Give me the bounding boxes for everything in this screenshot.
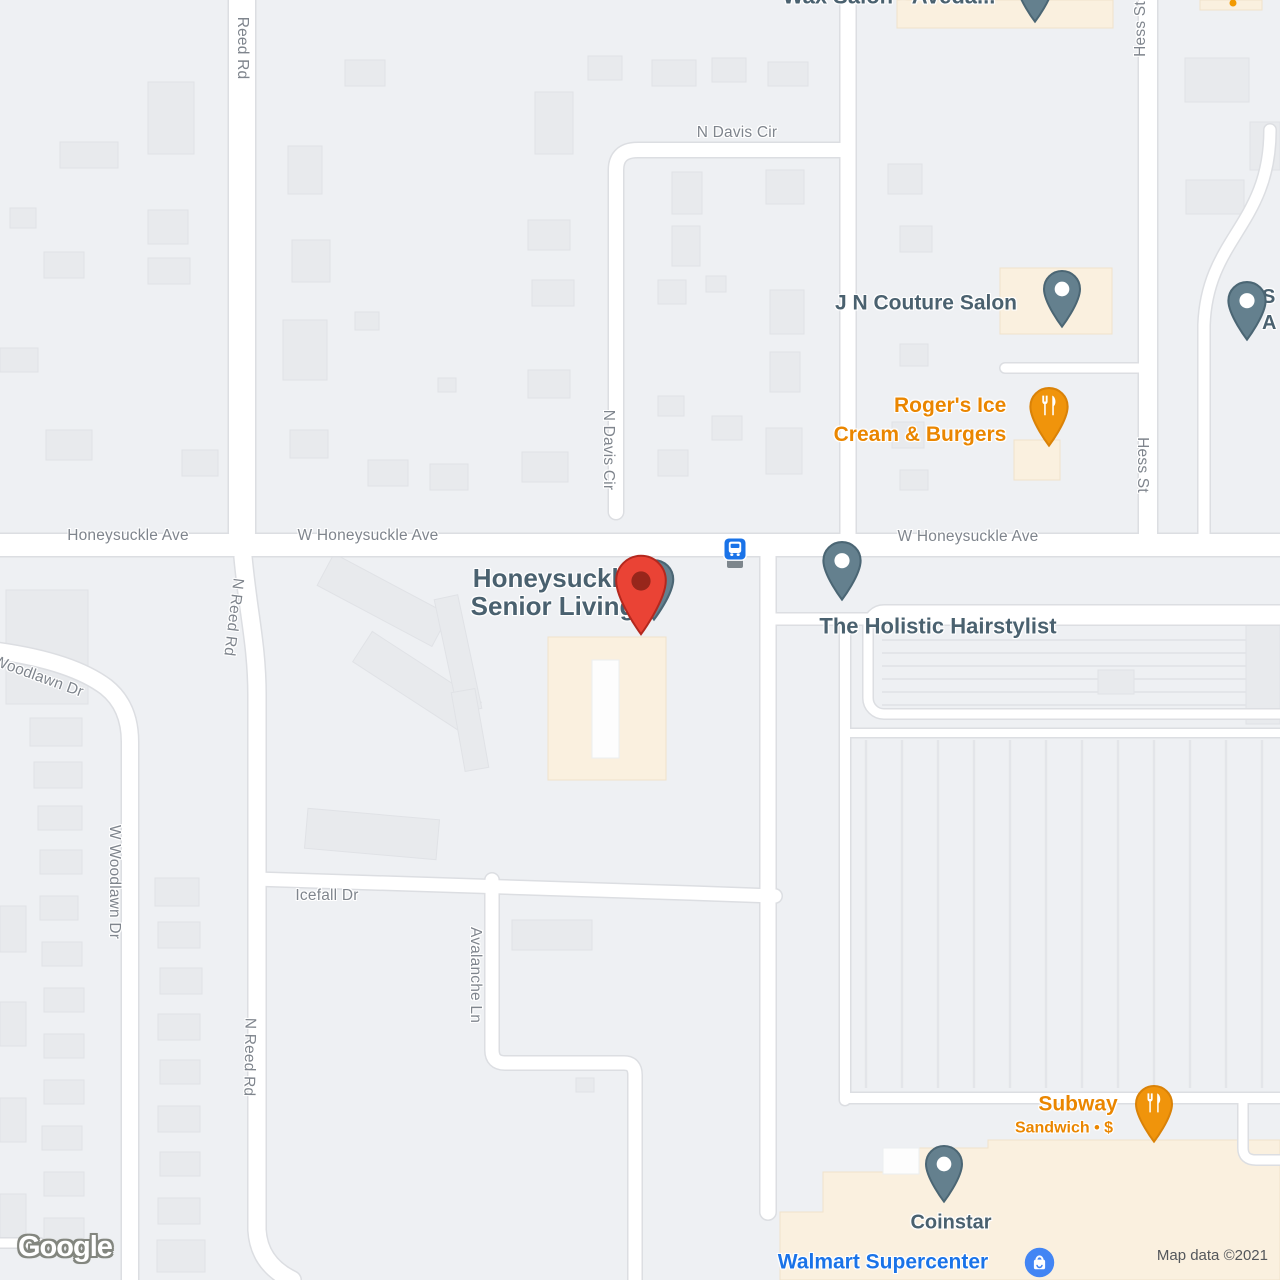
street-label-n-davis-cir-h: N Davis Cir — [697, 124, 778, 142]
poi-label-line: Cream & Burgers — [834, 420, 1007, 449]
poi-label-line: Roger's Ice — [834, 391, 1007, 420]
poi-label-honeysuckle-senior-living[interactable]: Honeysuckle Senior Living — [471, 564, 636, 620]
street-label-avalanche-ln: Avalanche Ln — [466, 927, 484, 1023]
street-label-n-davis-cir-v: N Davis Cir — [599, 410, 617, 491]
building — [283, 320, 327, 380]
street-label-hess-st-top: Hess St — [1132, 1, 1150, 57]
building — [157, 1240, 205, 1272]
building — [44, 1034, 84, 1058]
street-label-w-honeysuckle-ave-west: W Honeysuckle Ave — [298, 527, 439, 545]
building — [158, 922, 200, 948]
building — [292, 240, 330, 282]
building — [148, 258, 190, 284]
building-courtyard — [592, 660, 619, 758]
street-label-icefall-dr: Icefall Dr — [295, 887, 358, 905]
building — [658, 450, 688, 476]
fork-knife-pin-icon-subway[interactable] — [1134, 1083, 1174, 1145]
poi-label-walmart-supercenter[interactable]: Walmart Supercenter — [778, 1249, 988, 1276]
building — [528, 220, 570, 250]
red-destination-marker-icon-honeysuckle[interactable] — [613, 552, 669, 638]
building — [148, 210, 188, 244]
building — [38, 806, 82, 830]
building — [712, 416, 742, 440]
building — [42, 942, 82, 966]
poi-label-line: Honeysuckle — [471, 564, 636, 592]
building — [706, 276, 726, 292]
poi-label-line: Subway — [1038, 1091, 1117, 1118]
google-logo[interactable]: Google — [18, 1231, 112, 1264]
building — [290, 430, 328, 458]
building — [1246, 612, 1280, 724]
poi-label-holistic-hairstylist[interactable]: The Holistic Hairstylist — [819, 613, 1056, 640]
building — [588, 56, 622, 80]
building — [158, 1014, 200, 1040]
street-label-honeysuckle-ave: Honeysuckle Ave — [67, 527, 189, 545]
building — [160, 1152, 200, 1176]
poi-label-subtitle: Sandwich • $ — [1010, 1118, 1117, 1140]
street-label-reed-rd: Reed Rd — [233, 17, 251, 80]
building — [42, 1126, 82, 1150]
building — [30, 718, 82, 746]
building — [44, 988, 84, 1012]
building — [60, 142, 118, 168]
place-pin-icon-right-edge[interactable] — [1226, 280, 1268, 342]
building — [148, 82, 194, 154]
building — [368, 460, 408, 486]
building — [658, 396, 684, 416]
street-label-w-honeysuckle-ave-east: W Honeysuckle Ave — [898, 528, 1039, 546]
building — [158, 1198, 200, 1224]
place-pin-icon-holistic[interactable] — [821, 540, 863, 602]
poi-label-subway[interactable]: Subway Sandwich • $ — [1038, 1091, 1117, 1140]
building — [160, 1060, 200, 1084]
building — [576, 1078, 594, 1092]
building — [10, 208, 36, 228]
building — [512, 920, 592, 950]
poi-label-line: Senior Living — [471, 592, 636, 620]
building — [522, 452, 568, 482]
building — [160, 968, 202, 994]
building — [44, 252, 84, 278]
building — [768, 62, 808, 86]
building — [888, 164, 922, 194]
poi-label-jn-couture-salon[interactable]: J N Couture Salon — [835, 290, 1017, 317]
building — [528, 370, 570, 398]
building — [34, 762, 82, 788]
building — [900, 226, 932, 252]
poi-label-rogers-ice-cream[interactable]: Roger's Ice Cream & Burgers — [834, 391, 1007, 449]
building — [288, 146, 322, 194]
building — [900, 470, 928, 490]
building — [40, 850, 82, 874]
poi-label-wax-salon[interactable]: Wax Salon - Aveda... — [783, 0, 996, 10]
building — [766, 428, 802, 474]
building — [535, 92, 573, 154]
place-pin-icon-jn-couture[interactable] — [1042, 268, 1082, 330]
building — [712, 58, 746, 82]
building — [672, 172, 702, 214]
building — [430, 464, 468, 490]
bus-icon-transit-stop[interactable] — [723, 537, 747, 561]
street-label-n-reed-rd-lower: N Reed Rd — [239, 1018, 258, 1097]
map-data-attribution: Map data ©2021 — [1157, 1247, 1268, 1264]
building — [766, 170, 804, 204]
building — [0, 1002, 26, 1046]
place-pin-icon-wax-salon[interactable] — [1015, 0, 1055, 25]
building-courtyard — [883, 1148, 919, 1174]
map-canvas[interactable]: Reed Rd N Davis Cir N Davis Cir Hess St … — [0, 0, 1280, 1280]
street-label-w-woodlawn-dr: W Woodlawn Dr — [105, 825, 123, 939]
building — [1185, 58, 1249, 102]
building — [658, 280, 686, 304]
poi-label-coinstar[interactable]: Coinstar — [910, 1210, 991, 1237]
building — [900, 344, 928, 366]
building — [652, 60, 696, 86]
building — [40, 896, 78, 920]
building — [155, 878, 199, 906]
building — [770, 290, 804, 334]
building — [46, 430, 92, 460]
building — [532, 280, 574, 306]
building — [345, 60, 385, 86]
building — [672, 226, 700, 266]
fork-knife-pin-icon-rogers[interactable] — [1028, 386, 1070, 448]
place-pin-icon-coinstar[interactable] — [924, 1143, 964, 1205]
building — [1098, 670, 1134, 694]
building — [355, 312, 379, 330]
map-base-tiles — [0, 0, 1280, 1280]
shopping-bag-icon-walmart[interactable] — [1024, 1247, 1055, 1278]
building — [44, 1172, 84, 1196]
building — [158, 1106, 200, 1132]
street-label-hess-st-mid: Hess St — [1133, 437, 1151, 493]
building — [0, 348, 38, 372]
building — [0, 1098, 26, 1142]
building — [44, 1080, 84, 1104]
building — [1186, 180, 1244, 214]
building — [770, 352, 800, 392]
building — [438, 378, 456, 392]
building — [0, 906, 26, 952]
building — [182, 450, 218, 476]
